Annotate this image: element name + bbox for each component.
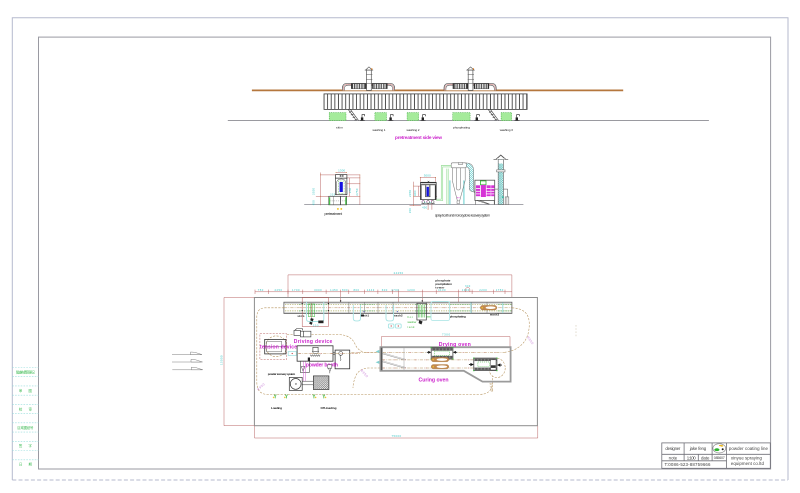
svg-text:1700: 1700: [391, 288, 399, 292]
svg-text:skim: skim: [336, 126, 343, 130]
svg-text:600: 600: [465, 285, 471, 288]
svg-text:pretreatment: pretreatment: [325, 212, 343, 216]
svg-text:管道布置变更记: 管道布置变更记: [16, 370, 36, 375]
svg-text:085607: 085607: [714, 456, 725, 460]
svg-text:phosphating: phosphating: [453, 125, 470, 129]
svg-text:T:0086-523-88759666: T:0086-523-88759666: [665, 462, 712, 467]
svg-text:15000: 15000: [220, 355, 224, 365]
svg-text:3000: 3000: [314, 288, 322, 292]
svg-text:washing 3: washing 3: [500, 128, 513, 132]
svg-text:Loading: Loading: [271, 406, 282, 410]
svg-text:2250: 2250: [274, 288, 282, 292]
svg-text:1300: 1300: [413, 190, 417, 197]
svg-text:wash3: wash3: [489, 313, 499, 317]
svg-text:1750: 1750: [496, 288, 504, 292]
svg-text:designer: designer: [665, 446, 681, 451]
svg-text:审 图: 审 图: [19, 388, 33, 393]
svg-text:24250: 24250: [394, 271, 404, 275]
svg-text:750: 750: [258, 288, 264, 292]
svg-text:hot: hot: [408, 315, 413, 319]
svg-text:washing 1: washing 1: [373, 128, 386, 132]
svg-text:powder booth: powder booth: [306, 362, 338, 368]
svg-text:phosphating: phosphating: [450, 314, 466, 318]
svg-text:600: 600: [382, 288, 388, 292]
svg-text:日 期: 日 期: [19, 462, 33, 467]
svg-text:1300: 1300: [462, 288, 470, 292]
svg-text:7300: 7300: [442, 333, 450, 337]
svg-text:75000: 75000: [391, 434, 401, 438]
svg-text:450: 450: [312, 200, 316, 205]
svg-text:1450: 1450: [330, 288, 338, 292]
svg-text:Off-loading: Off-loading: [321, 406, 337, 410]
svg-text:1700: 1700: [292, 288, 300, 292]
svg-text:Drying oven: Drying oven: [439, 342, 471, 348]
svg-text:tower: tower: [435, 286, 445, 290]
svg-text:区域图纸号: 区域图纸号: [17, 425, 34, 430]
svg-text:date: date: [701, 455, 710, 460]
svg-text:1300: 1300: [338, 169, 345, 173]
svg-text:note: note: [669, 455, 678, 460]
svg-text:300: 300: [313, 324, 319, 327]
svg-text:450: 450: [422, 206, 428, 210]
svg-text:150: 150: [408, 208, 412, 214]
svg-text:2350: 2350: [408, 190, 412, 197]
svg-text:签 字: 签 字: [19, 443, 33, 448]
svg-text:wash2: wash2: [393, 314, 403, 318]
svg-text:校 审: 校 审: [19, 406, 33, 411]
svg-text:1443: 1443: [367, 288, 375, 292]
svg-text:tension device: tension device: [260, 345, 297, 351]
svg-text:1200: 1200: [407, 288, 415, 292]
svg-text:powder coating line: powder coating line: [729, 446, 769, 451]
svg-text:250: 250: [348, 188, 352, 193]
svg-text:washing 2: washing 2: [407, 128, 420, 132]
svg-text:2350: 2350: [312, 188, 316, 195]
svg-text:spray booth and monocyclone re: spray booth and monocyclone recovery sys…: [435, 213, 490, 217]
svg-text:equipment co.ltd: equipment co.ltd: [731, 461, 765, 466]
svg-text:powder recovery system: powder recovery system: [268, 372, 296, 376]
svg-text:2200: 2200: [479, 288, 487, 292]
svg-text:tank: tank: [408, 325, 416, 329]
svg-text:1:100: 1:100: [687, 455, 697, 460]
svg-text:washer: washer: [408, 320, 417, 324]
svg-text:800: 800: [342, 288, 348, 292]
svg-text:800: 800: [353, 288, 359, 292]
svg-text:3000: 3000: [424, 173, 431, 177]
svg-text:skim: skim: [297, 314, 305, 318]
svg-text:pretreatment side view: pretreatment side view: [395, 135, 442, 140]
svg-text:xinyue spraying: xinyue spraying: [731, 456, 763, 461]
svg-text:2750: 2750: [355, 188, 359, 195]
svg-text:Curing oven: Curing oven: [419, 378, 449, 384]
svg-text:jake feng: jake feng: [689, 446, 707, 451]
svg-text:Driving device: Driving device: [294, 339, 333, 345]
